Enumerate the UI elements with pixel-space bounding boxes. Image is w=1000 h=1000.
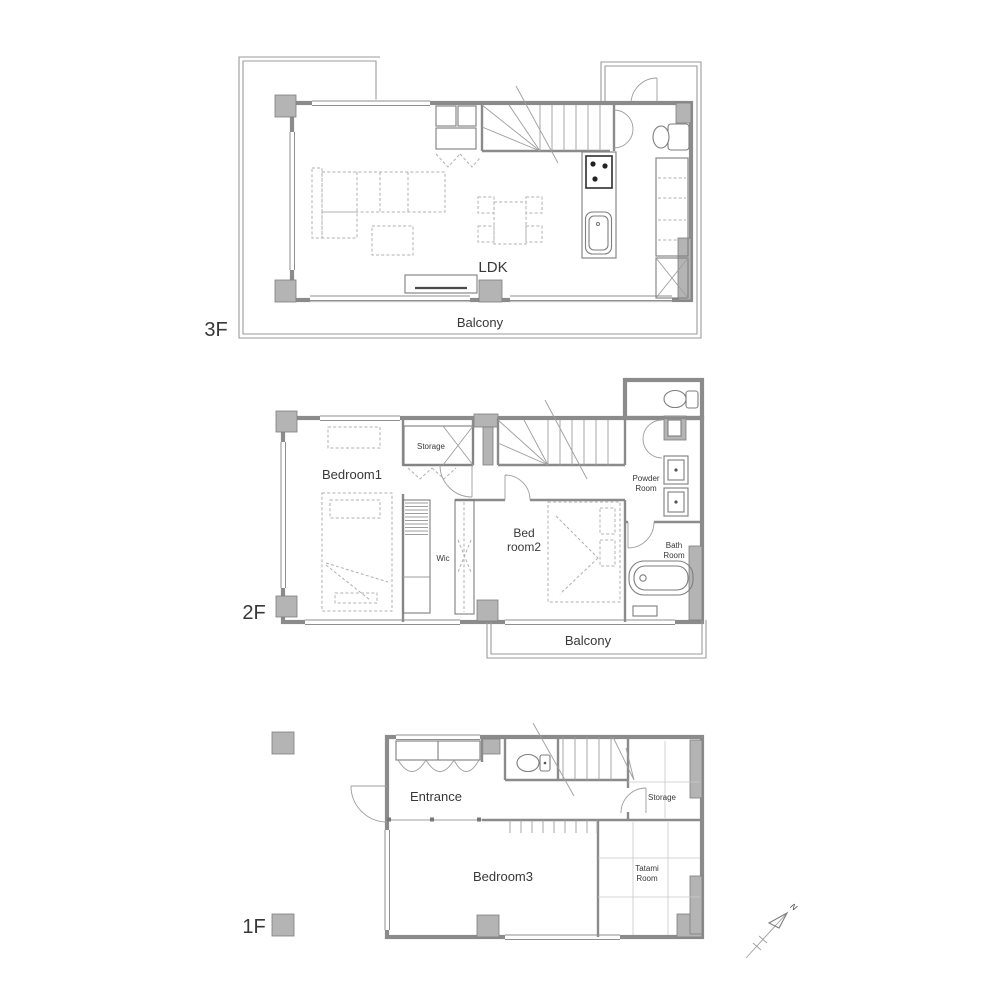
2f-window-bottom-right [505, 619, 675, 626]
1f-entrance-door-arc [351, 786, 387, 822]
2f-corridor-door-arc [440, 465, 472, 497]
2f-bedroom2-door-arc [505, 475, 530, 500]
2f-label-bath-line1: Bath [666, 541, 682, 550]
3f-stove-icon [586, 156, 612, 188]
2f-bifold-door-arcs [643, 420, 662, 458]
3f-label-ldk: LDK [478, 259, 507, 276]
1f-window-left [384, 830, 391, 930]
2f-window-bottom-left [305, 619, 460, 626]
1f-shoe-cabinet [396, 741, 480, 772]
2f-bathtub-icon [629, 561, 693, 595]
2f-window-top [320, 415, 400, 422]
3f-porch-door-arc [631, 78, 657, 103]
3f-window-left [289, 132, 296, 270]
3f-window-bottom-right [510, 295, 672, 302]
floor-1f-plan: Entrance Bedroom3 Storage Tatami Room 1F [242, 723, 702, 941]
2f-wash-basin-icon-2 [664, 488, 688, 516]
2f-label-powder-line1: Powder [632, 474, 659, 483]
1f-column-bottom-middle [477, 915, 499, 937]
2f-bath-step [633, 606, 657, 616]
compass-shaft [746, 913, 787, 958]
2f-window-left [280, 442, 287, 588]
3f-storage-closet [436, 106, 480, 167]
3f-toilet-icon [653, 124, 689, 150]
2f-pier-bottom-right [689, 546, 702, 620]
2f-bath-door-arc [628, 522, 654, 548]
compass-arrowhead-icon [769, 913, 787, 928]
3f-window-bottom-left [310, 295, 470, 302]
2f-label-bath-line2: Room [663, 551, 685, 560]
2f-interior-walls [403, 418, 702, 622]
2f-pier-stair-tee [474, 414, 498, 465]
1f-pier-top-right [690, 740, 702, 798]
3f-kitchen-island [582, 152, 616, 258]
3f-column-bottom-left [275, 280, 296, 302]
2f-label-bedroom2-line1: Bed [513, 526, 534, 540]
floorplan-image: LDK Balcony 3F [0, 0, 1000, 1000]
2f-label-wic: Wic [436, 554, 449, 563]
3f-kitchen-sink-icon [586, 212, 612, 254]
1f-pillar-top-left [272, 732, 294, 754]
1f-label-tatami-line2: Room [636, 874, 658, 883]
1f-hall-rail [510, 820, 597, 833]
2f-toilet-icon [664, 391, 698, 409]
1f-storage-door-arc [621, 788, 646, 813]
2f-label-balcony: Balcony [565, 633, 612, 648]
3f-floor-label: 3F [204, 319, 227, 341]
1f-storage-shelf-grid [628, 741, 700, 818]
2f-column-top-left [276, 411, 297, 432]
3f-double-door-arcs [614, 110, 633, 148]
3f-dining-table [494, 202, 526, 244]
floor-2f-plan: Bedroom1 Storage Wic Bed room2 Powder Ro… [242, 380, 706, 658]
2f-stair-direction-line [545, 400, 587, 479]
2f-label-storage: Storage [417, 442, 446, 451]
2f-label-powder-line2: Room [635, 484, 657, 493]
compass-north-arrow: N [746, 902, 799, 958]
1f-window-top-entrance [396, 734, 480, 741]
2f-wic-shelves [403, 500, 430, 613]
2f-storage-closet [404, 426, 473, 479]
3f-column-top-left [275, 95, 296, 117]
2f-label-bedroom2-line2: room2 [507, 540, 541, 554]
1f-window-bottom [505, 934, 620, 941]
2f-label-bedroom1: Bedroom1 [322, 467, 382, 482]
2f-bed-single [322, 427, 392, 611]
3f-pier-bottom-right [678, 238, 691, 300]
1f-toilet-icon [517, 755, 550, 772]
3f-window-top [312, 100, 430, 107]
2f-column-bottom-left [276, 596, 297, 617]
1f-label-bedroom3: Bedroom3 [473, 869, 533, 884]
1f-pier-entrance [482, 739, 500, 754]
2f-column-bottom-middle [477, 600, 498, 621]
3f-coffee-table [372, 226, 413, 255]
2f-floor-label: 2F [242, 602, 265, 624]
1f-interior-walls [482, 737, 702, 937]
1f-entrance-step [387, 818, 482, 822]
1f-floor-label: 1F [242, 916, 265, 938]
1f-label-storage: Storage [648, 793, 677, 802]
3f-sofa [312, 168, 445, 255]
1f-pillar-bottom-left [272, 914, 294, 936]
3f-tv-board [405, 275, 477, 293]
1f-stair-direction-line [533, 723, 574, 796]
3f-dining-set [478, 197, 542, 244]
floorplan-canvas: LDK Balcony 3F [0, 0, 1000, 1000]
2f-duct-pier [664, 416, 686, 440]
3f-label-balcony: Balcony [457, 315, 504, 330]
1f-label-entrance: Entrance [410, 789, 462, 804]
2f-staircase [498, 400, 608, 479]
floor-3f-plan: LDK Balcony 3F [204, 57, 701, 341]
3f-pier-top-right [676, 103, 691, 123]
3f-column-bottom-middle [479, 280, 502, 302]
compass-north-label: N [788, 902, 798, 913]
2f-wic-sliding-partition [455, 500, 474, 614]
2f-wash-basin-icon-1 [664, 456, 688, 484]
1f-label-tatami-line1: Tatami [635, 864, 659, 873]
2f-bed-double [548, 502, 620, 602]
1f-pier-bottom-right [677, 876, 702, 937]
